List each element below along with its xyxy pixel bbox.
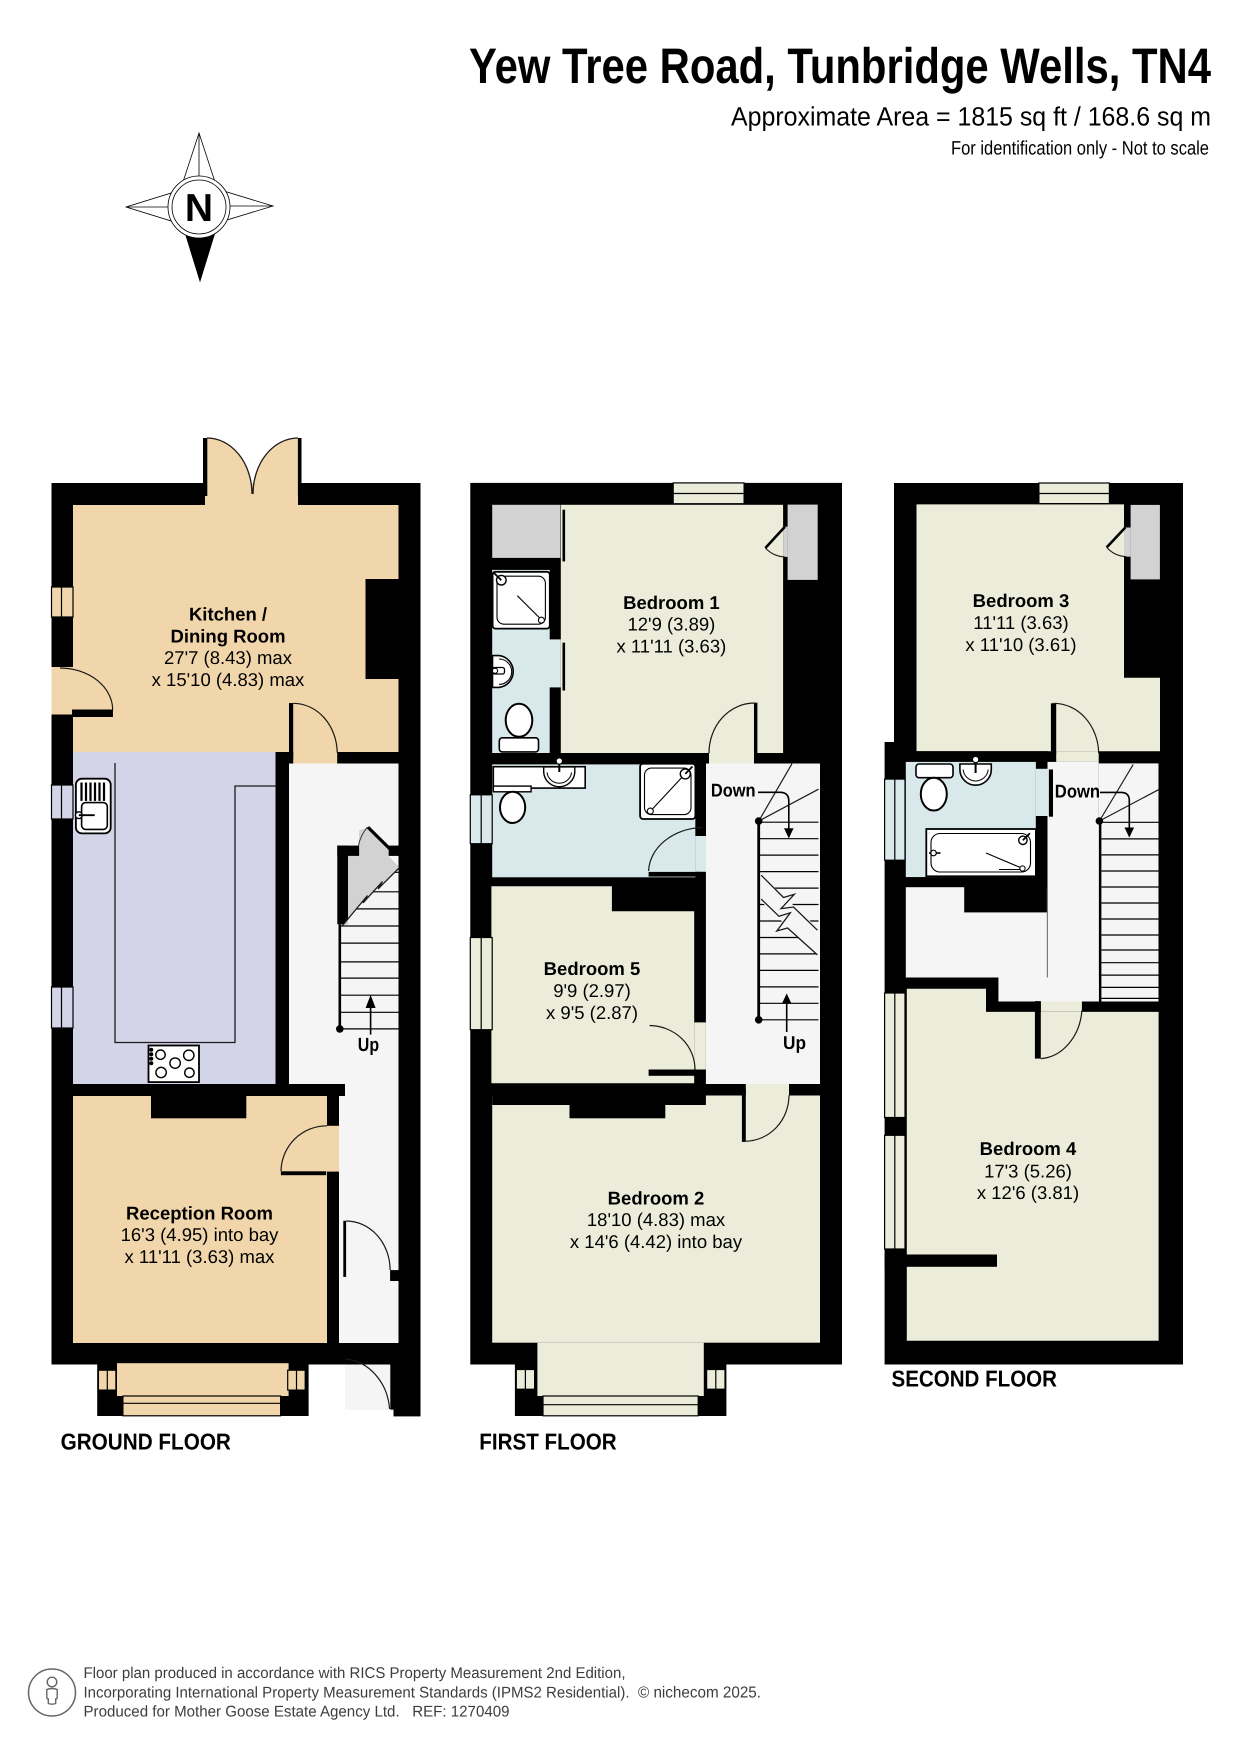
svg-text:Produced for Mother Goose Esta: Produced for Mother Goose Estate Agency … xyxy=(84,1703,510,1720)
svg-text:For identification only - Not: For identification only - Not to scale xyxy=(951,138,1209,160)
svg-text:x 11'11 (3.63) max: x 11'11 (3.63) max xyxy=(125,1246,276,1267)
svg-text:x 12'6 (3.81): x 12'6 (3.81) xyxy=(977,1182,1079,1203)
svg-text:16'3 (4.95) into bay: 16'3 (4.95) into bay xyxy=(121,1224,280,1245)
svg-text:18'10 (4.83) max: 18'10 (4.83) max xyxy=(587,1209,726,1230)
svg-text:9'9 (2.97): 9'9 (2.97) xyxy=(553,980,631,1001)
svg-text:N: N xyxy=(185,187,213,230)
svg-text:Dining Room: Dining Room xyxy=(170,625,285,646)
svg-text:x 11'11 (3.63): x 11'11 (3.63) xyxy=(616,636,726,657)
svg-text:Down: Down xyxy=(711,780,756,801)
svg-text:FIRST FLOOR: FIRST FLOOR xyxy=(479,1428,617,1454)
svg-text:SECOND FLOOR: SECOND FLOOR xyxy=(892,1366,1058,1392)
svg-text:17'3 (5.26): 17'3 (5.26) xyxy=(984,1160,1072,1181)
svg-text:x 15'10 (4.83) max: x 15'10 (4.83) max xyxy=(152,669,305,690)
svg-text:© nichecom 2025.: © nichecom 2025. xyxy=(638,1685,761,1702)
svg-text:Bedroom 4: Bedroom 4 xyxy=(980,1138,1077,1159)
svg-text:Up: Up xyxy=(783,1032,806,1053)
svg-text:Reception Room: Reception Room xyxy=(126,1202,273,1223)
svg-text:Down: Down xyxy=(1055,781,1100,802)
svg-text:Bedroom 2: Bedroom 2 xyxy=(608,1187,705,1208)
svg-text:Up: Up xyxy=(358,1035,379,1056)
svg-text:11'11 (3.63): 11'11 (3.63) xyxy=(973,612,1068,633)
svg-text:x 14'6 (4.42) into bay: x 14'6 (4.42) into bay xyxy=(570,1231,743,1252)
svg-text:Kitchen /: Kitchen / xyxy=(189,604,267,625)
svg-text:x 11'10 (3.61): x 11'10 (3.61) xyxy=(965,634,1076,655)
svg-text:Yew Tree Road, Tunbridge Wells: Yew Tree Road, Tunbridge Wells, TN4 xyxy=(469,38,1211,94)
svg-text:12'9 (3.89): 12'9 (3.89) xyxy=(627,614,715,635)
svg-text:Incorporating International Pr: Incorporating International Property Mea… xyxy=(84,1685,630,1702)
svg-text:Floor plan produced in accorda: Floor plan produced in accordance with R… xyxy=(84,1665,626,1682)
svg-text:Bedroom 5: Bedroom 5 xyxy=(544,958,641,979)
svg-text:Bedroom 1: Bedroom 1 xyxy=(623,592,720,613)
svg-text:Bedroom 3: Bedroom 3 xyxy=(973,590,1070,611)
svg-text:Approximate Area = 1815 sq ft: Approximate Area = 1815 sq ft / 168.6 sq… xyxy=(731,102,1211,132)
svg-text:27'7 (8.43) max: 27'7 (8.43) max xyxy=(164,647,293,668)
svg-text:GROUND FLOOR: GROUND FLOOR xyxy=(61,1428,232,1454)
svg-text:x 9'5 (2.87): x 9'5 (2.87) xyxy=(546,1002,638,1023)
